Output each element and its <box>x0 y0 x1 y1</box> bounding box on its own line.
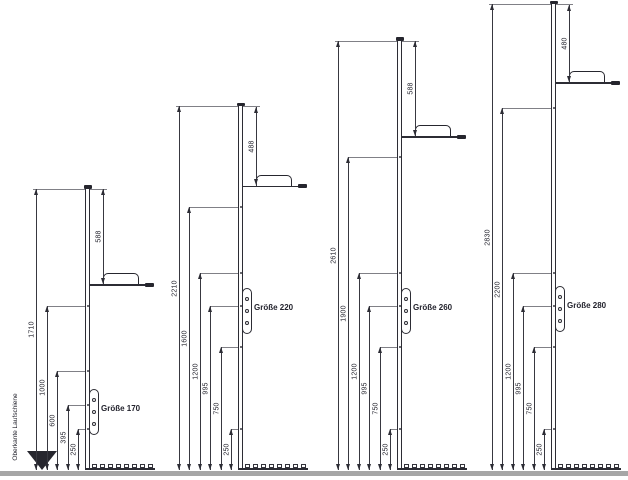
rail-3 <box>551 4 556 470</box>
foot-tooth-0-3 <box>116 464 121 468</box>
profile-size-label-0: Größe 170 <box>101 404 140 413</box>
lock-hole <box>404 309 408 313</box>
dim-left-3-3-arrow-up <box>521 306 525 312</box>
dim-left-0-0-arrow-down <box>34 464 38 470</box>
lock-gearbox-0 <box>89 389 99 435</box>
dim-left-2-2-arrow-down <box>357 464 361 470</box>
dim-left-2-2-arrow-up <box>357 273 361 279</box>
ext-1-2 <box>200 273 239 274</box>
lock-gearbox-1 <box>242 288 252 334</box>
foot-tooth-0-5 <box>132 464 137 468</box>
lock-hole <box>92 410 96 414</box>
profile-size-label-1: Größe 220 <box>254 303 293 312</box>
foot-tooth-1-6 <box>293 464 298 468</box>
dim-left-3-4-arrow-up <box>532 347 536 353</box>
lock-hole <box>245 321 249 325</box>
dim-left-2-2-label: 1200 <box>350 356 359 386</box>
baseline-label: Oberkante Laufschiene <box>10 395 20 459</box>
ext-3-0 <box>489 4 552 5</box>
foot-tooth-2-1 <box>412 464 417 468</box>
ext-1-3 <box>210 306 238 307</box>
ext-3-3 <box>523 306 551 307</box>
dim-left-1-0-arrow-down <box>177 464 181 470</box>
foot-tooth-1-7 <box>301 464 306 468</box>
dim-left-0-2-arrow-down <box>55 464 59 470</box>
dim-top-0-label: 588 <box>95 222 104 252</box>
lock-hole <box>558 295 562 299</box>
dim-left-2-1-label: 1900 <box>340 299 349 329</box>
rail-dot-0-4 <box>87 428 89 430</box>
foot-tooth-2-6 <box>452 464 457 468</box>
lock-hole <box>245 297 249 301</box>
dim-left-1-0-label: 2210 <box>170 273 179 303</box>
foot-bar-1 <box>238 468 308 470</box>
rail-dot-1-5 <box>240 428 242 430</box>
dim-left-3-1-arrow-down <box>500 464 504 470</box>
ext-3-1 <box>502 108 551 109</box>
rail-2 <box>397 41 402 470</box>
dim-left-3-3-label: 995 <box>515 373 524 403</box>
ext-3-4 <box>534 347 552 348</box>
handle-2 <box>415 125 451 136</box>
dim-left-3-2-label: 1200 <box>504 356 513 386</box>
dim-left-3-0-label: 2830 <box>483 222 492 252</box>
ext-2-4 <box>380 347 398 348</box>
dim-left-1-2-arrow-up <box>198 273 202 279</box>
ext-2-2 <box>359 273 398 274</box>
dim-left-2-5-label: 250 <box>382 434 391 464</box>
lock-hole <box>558 319 562 323</box>
foot-tooth-3-3 <box>582 464 587 468</box>
dim-left-0-2-label: 600 <box>49 406 58 436</box>
dim-left-2-3-arrow-up <box>367 306 371 312</box>
rail-dot-3-4 <box>553 346 555 348</box>
dim-left-2-1-arrow-down <box>346 464 350 470</box>
dim-top-1-arrow-up <box>254 107 258 113</box>
foot-tooth-2-4 <box>436 464 441 468</box>
dim-left-1-1-label: 1600 <box>181 323 190 353</box>
foot-bar-2 <box>397 468 467 470</box>
foot-bar-3 <box>551 468 621 470</box>
lock-gearbox-2 <box>401 288 411 334</box>
foot-tooth-1-5 <box>285 464 290 468</box>
dim-top-2-arrow-up <box>413 41 417 47</box>
handle-end-0 <box>145 283 154 287</box>
dim-left-0-1-arrow-down <box>45 464 49 470</box>
ext-2-1 <box>348 157 397 158</box>
rail-dot-1-1 <box>240 206 242 208</box>
dim-left-3-4-label: 750 <box>525 393 534 423</box>
dim-left-0-3-label: 395 <box>59 423 68 453</box>
baseline-triangle-icon <box>27 451 57 470</box>
dim-left-1-2-arrow-down <box>198 464 202 470</box>
dim-left-1-2-label: 1200 <box>191 356 200 386</box>
foot-tooth-3-6 <box>606 464 611 468</box>
dim-top-2-arrow-down <box>413 130 417 136</box>
dim-left-2-4-label: 750 <box>371 393 380 423</box>
rail-dot-3-2 <box>553 272 555 274</box>
profile-size-label-3: Größe 280 <box>567 301 606 310</box>
dim-left-3-3-arrow-down <box>521 464 525 470</box>
ext-0-2 <box>57 371 85 372</box>
foot-tooth-2-2 <box>420 464 425 468</box>
rail-dot-2-2 <box>399 272 401 274</box>
dim-left-2-0-label: 2610 <box>329 240 338 270</box>
foot-tooth-3-0 <box>558 464 563 468</box>
lock-hole <box>404 321 408 325</box>
dim-left-3-0-arrow-down <box>490 464 494 470</box>
dim-left-1-3-label: 995 <box>202 373 211 403</box>
lock-hole <box>92 422 96 426</box>
dim-top-3-arrow-down <box>567 76 571 82</box>
dim-left-2-4-arrow-up <box>378 347 382 353</box>
lock-hole <box>92 398 96 402</box>
dim-left-3-2-arrow-up <box>511 273 515 279</box>
handle-end-1 <box>298 184 307 188</box>
ext-0-3 <box>68 405 86 406</box>
ext-0-1 <box>47 306 86 307</box>
dim-left-2-3-arrow-down <box>367 464 371 470</box>
lock-hole <box>245 309 249 313</box>
rail-dot-1-2 <box>240 272 242 274</box>
ext-3-2 <box>513 273 552 274</box>
foot-tooth-0-6 <box>140 464 145 468</box>
dim-left-1-0-arrow-up <box>177 106 181 112</box>
dim-left-1-3-arrow-up <box>208 306 212 312</box>
lock-gearbox-3 <box>555 286 565 332</box>
foot-tooth-3-4 <box>590 464 595 468</box>
rail-dot-1-4 <box>240 346 242 348</box>
foot-tooth-0-0 <box>92 464 97 468</box>
rail-1 <box>238 106 243 470</box>
dim-left-2-1-arrow-up <box>346 157 350 163</box>
dim-left-0-0-label: 1710 <box>28 314 37 344</box>
handle-base-3 <box>556 82 613 83</box>
dim-left-1-3-arrow-down <box>208 464 212 470</box>
dim-left-0-0-arrow-up <box>34 189 38 195</box>
foot-tooth-0-7 <box>148 464 153 468</box>
profile-size-label-2: Größe 260 <box>413 303 452 312</box>
ext-2-0 <box>335 41 398 42</box>
ext-1-4 <box>221 347 239 348</box>
foot-tooth-0-1 <box>100 464 105 468</box>
dim-left-3-0-arrow-up <box>490 4 494 10</box>
lock-hole <box>558 307 562 311</box>
dim-top-3-label: 480 <box>561 29 570 59</box>
rail-dot-0-3 <box>87 404 89 406</box>
dim-left-1-4-arrow-up <box>219 347 223 353</box>
foot-tooth-0-2 <box>108 464 113 468</box>
dim-left-0-2-arrow-up <box>55 371 59 377</box>
handle-base-1 <box>243 186 300 187</box>
dim-left-2-0-arrow-down <box>336 464 340 470</box>
foot-tooth-1-4 <box>277 464 282 468</box>
technical-drawing-canvas: Oberkante Laufschiene Größe 170588171010… <box>0 0 628 480</box>
foot-tooth-1-1 <box>253 464 258 468</box>
ground-line <box>0 471 628 476</box>
foot-bar-0 <box>85 468 155 470</box>
dim-left-2-3-label: 995 <box>361 373 370 403</box>
dim-left-1-1-arrow-up <box>187 207 191 213</box>
handle-base-0 <box>90 284 147 285</box>
dim-left-1-4-label: 750 <box>212 393 221 423</box>
rail-dot-0-1 <box>87 305 89 307</box>
dim-top-3-arrow-up <box>567 5 571 11</box>
dim-left-2-0-arrow-up <box>336 41 340 47</box>
rail-dot-3-1 <box>553 107 555 109</box>
foot-tooth-0-4 <box>124 464 129 468</box>
dim-left-0-1-label: 1000 <box>38 373 47 403</box>
handle-end-2 <box>457 135 466 139</box>
ext-1-1 <box>189 207 238 208</box>
lock-hole <box>404 297 408 301</box>
foot-tooth-2-7 <box>460 464 465 468</box>
foot-tooth-1-2 <box>261 464 266 468</box>
dim-left-3-2-arrow-down <box>511 464 515 470</box>
foot-tooth-3-2 <box>574 464 579 468</box>
foot-tooth-1-0 <box>245 464 250 468</box>
ext-2-3 <box>369 306 397 307</box>
rail-dot-3-5 <box>553 428 555 430</box>
dim-left-0-1-arrow-up <box>45 306 49 312</box>
foot-tooth-2-0 <box>404 464 409 468</box>
dim-top-1-arrow-down <box>254 179 258 185</box>
dim-left-0-4-label: 250 <box>70 434 79 464</box>
dim-left-3-5-label: 250 <box>536 434 545 464</box>
dim-top-0-arrow-up <box>101 189 105 195</box>
rail-dot-2-5 <box>399 428 401 430</box>
dim-top-2-label: 588 <box>407 74 416 104</box>
dim-left-0-3-arrow-up <box>66 405 70 411</box>
foot-tooth-3-1 <box>566 464 571 468</box>
foot-tooth-2-5 <box>444 464 449 468</box>
handle-1 <box>256 175 292 186</box>
handle-base-2 <box>402 136 459 137</box>
handle-0 <box>103 273 139 284</box>
dim-left-3-1-label: 2200 <box>494 274 503 304</box>
foot-tooth-1-3 <box>269 464 274 468</box>
dim-left-1-1-arrow-down <box>187 464 191 470</box>
handle-end-3 <box>611 81 620 85</box>
rail-dot-2-4 <box>399 346 401 348</box>
dim-top-0-arrow-down <box>101 278 105 284</box>
handle-3 <box>569 71 605 82</box>
foot-tooth-3-5 <box>598 464 603 468</box>
foot-tooth-2-3 <box>428 464 433 468</box>
foot-tooth-3-7 <box>614 464 619 468</box>
dim-left-3-1-arrow-up <box>500 108 504 114</box>
ext-0-0 <box>33 189 85 190</box>
dim-left-1-5-label: 250 <box>223 434 232 464</box>
dim-top-1-label: 488 <box>248 131 257 161</box>
ext-1-0 <box>176 106 239 107</box>
